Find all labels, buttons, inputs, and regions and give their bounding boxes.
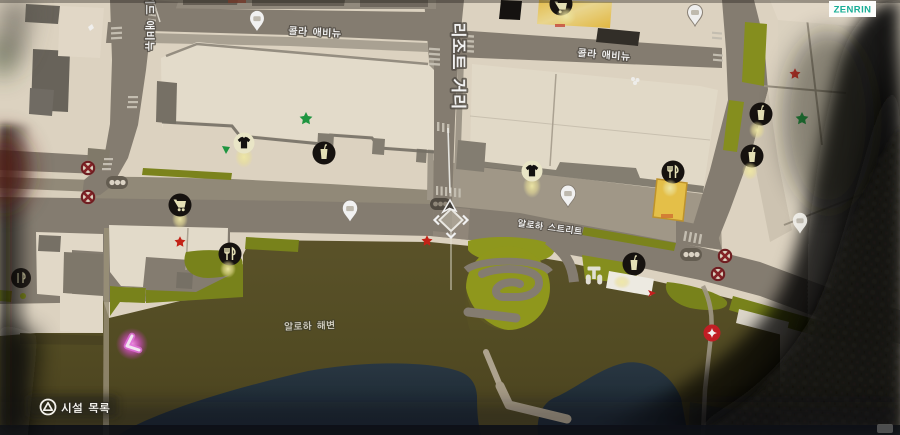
svg-text:ZENRIN: ZENRIN (834, 5, 872, 16)
